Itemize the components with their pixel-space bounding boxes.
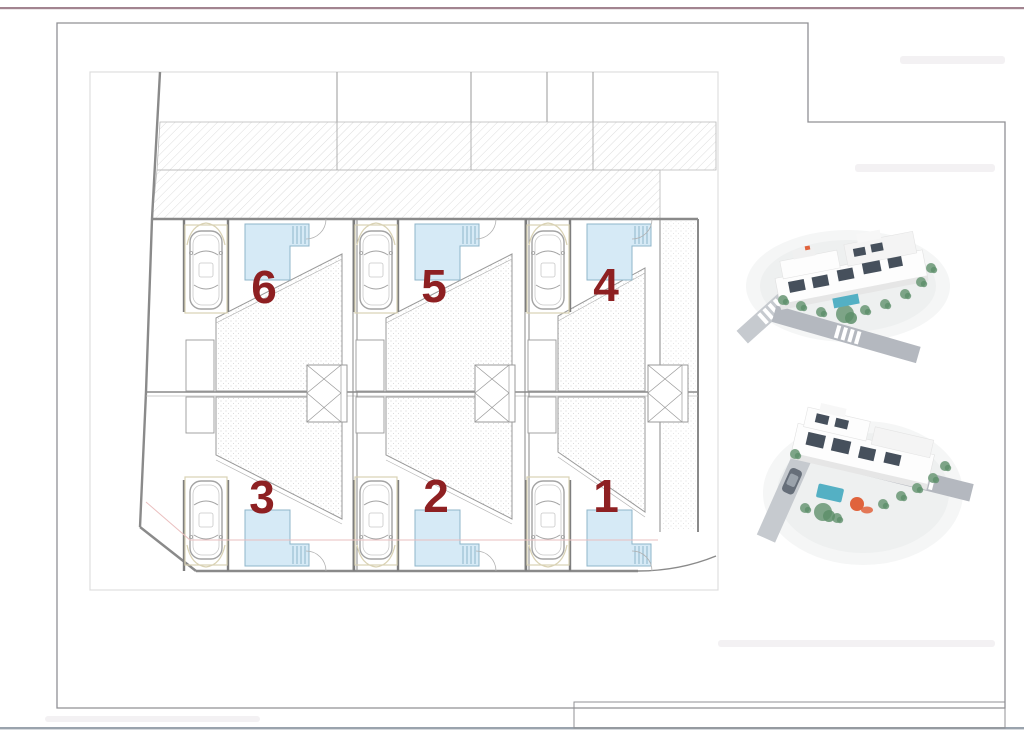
faint-watermark <box>855 164 995 172</box>
parked-car <box>355 223 397 313</box>
unit-label-3: 3 <box>249 471 275 523</box>
faint-watermark <box>45 716 260 722</box>
top-border-line <box>0 7 1024 9</box>
faint-watermark <box>900 56 1005 64</box>
parked-car <box>527 223 569 313</box>
unit-label-6: 6 <box>251 261 277 313</box>
unit-label-2: 2 <box>423 470 449 522</box>
unit-label-5: 5 <box>421 260 447 312</box>
sidewalk-hatch <box>152 122 716 219</box>
parked-car <box>527 477 569 567</box>
drawing-sheet: 6 5 4 3 2 1 <box>0 0 1024 732</box>
parked-car <box>185 223 227 313</box>
parked-car <box>185 477 227 567</box>
section-line <box>146 502 658 540</box>
render-aerial-top <box>737 222 950 363</box>
render-aerial-bottom <box>757 399 974 565</box>
unit-label-1: 1 <box>593 470 619 522</box>
faint-watermark <box>718 640 995 647</box>
title-block <box>574 702 1005 728</box>
site-plan: 6 5 4 3 2 1 <box>140 72 716 571</box>
parked-car <box>355 477 397 567</box>
unit-label-4: 4 <box>593 259 619 311</box>
